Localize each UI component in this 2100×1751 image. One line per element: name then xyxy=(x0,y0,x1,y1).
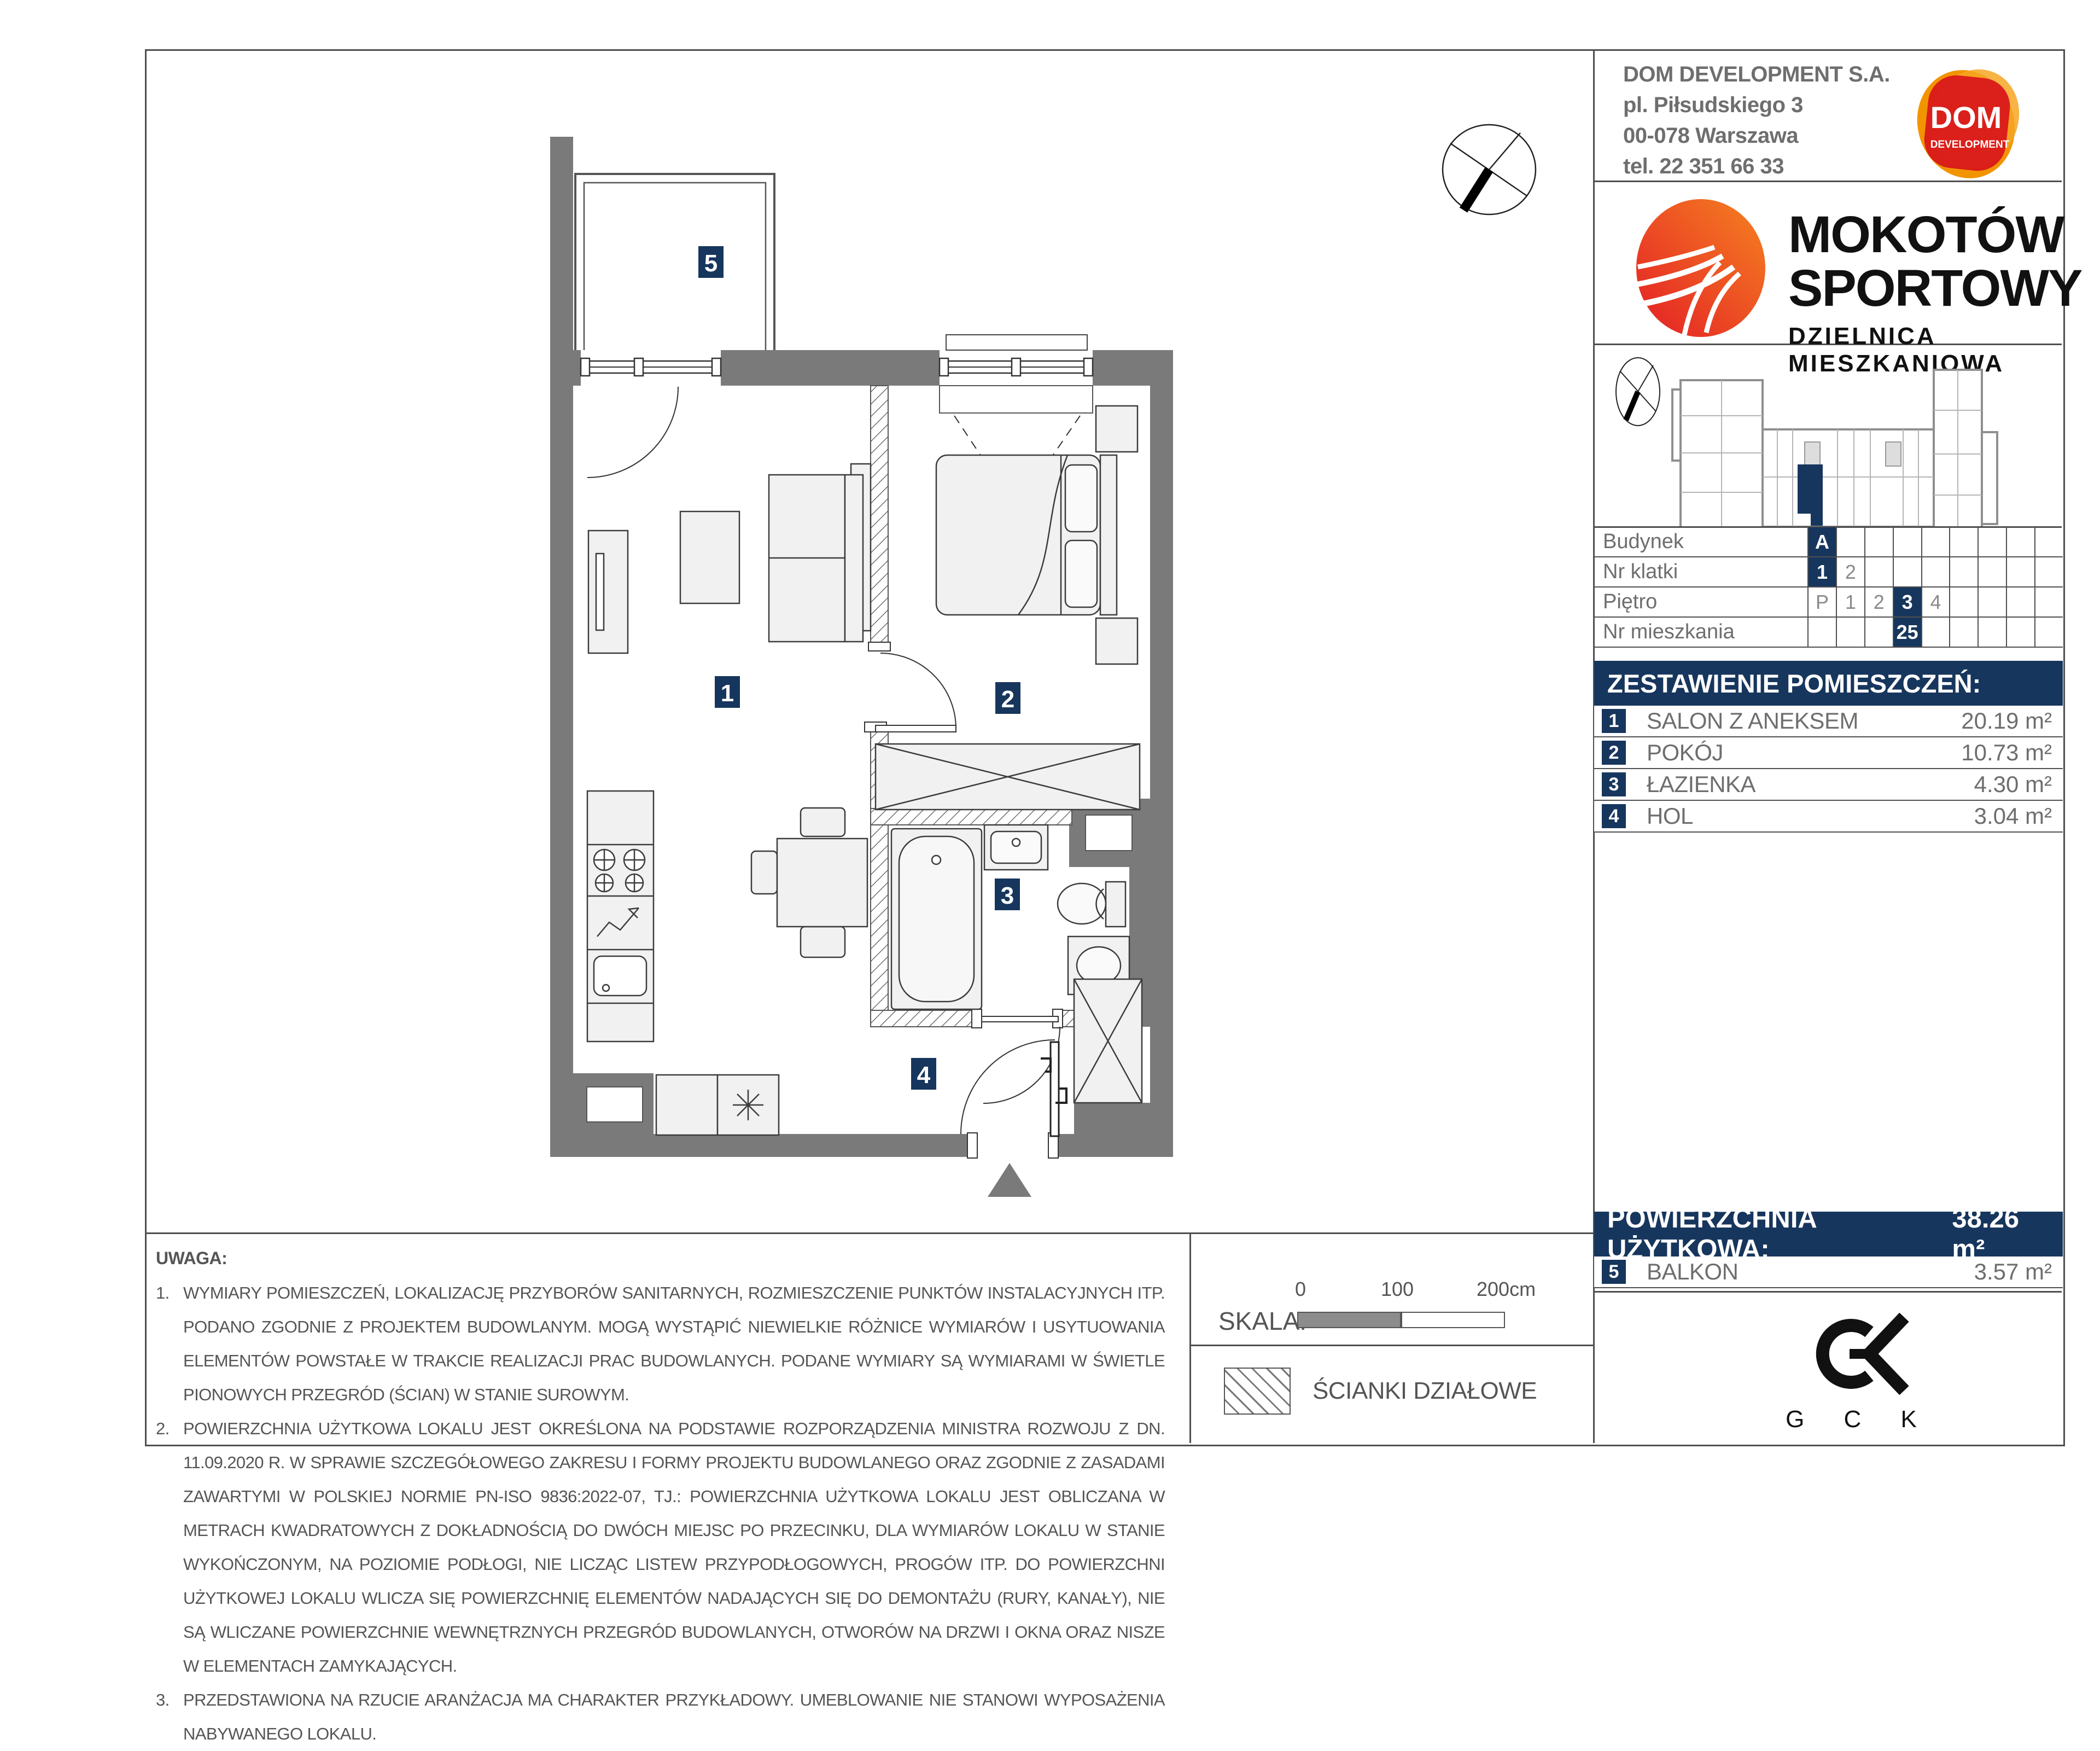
divider-gck xyxy=(1595,1291,2062,1293)
chair xyxy=(801,927,845,957)
room-number-badge: 3 xyxy=(1602,772,1626,796)
divider-scale xyxy=(1189,1234,1191,1443)
cell-building: A xyxy=(1809,527,1837,556)
bed xyxy=(936,455,1117,615)
room-row-salon: 1 SALON Z ANEKSEM 20.19 m² xyxy=(1594,706,2063,737)
hall-cabinet xyxy=(656,1075,717,1135)
stairs-symbol xyxy=(1805,442,1820,466)
wardrobe-hall xyxy=(1074,979,1142,1103)
badge-hall: 4 xyxy=(911,1058,936,1090)
usable-area-value: 38.26 m² xyxy=(1952,1203,2050,1265)
partition-legend-label: ŚCIANKI DZIAŁOWE xyxy=(1312,1377,1537,1405)
rooms-header: ZESTAWIENIE POMIESZCZEŃ: xyxy=(1594,661,2063,706)
entrance-arrow xyxy=(988,1163,1031,1197)
room-number-badge: 5 xyxy=(1602,1260,1626,1284)
badge-living-room: 1 xyxy=(715,676,740,708)
badge-balcony: 5 xyxy=(698,246,724,278)
svg-text:4: 4 xyxy=(917,1062,931,1089)
svg-text:DOM: DOM xyxy=(1930,100,2002,135)
scale-tick-100: 100 xyxy=(1381,1278,1414,1301)
badge-bedroom: 2 xyxy=(995,682,1020,714)
notes-section: UWAGA: 1. WYMIARY POMIESZCZEŃ, LOKALIZAC… xyxy=(156,1248,1165,1751)
kitchen-sink xyxy=(594,956,646,996)
washbasin xyxy=(984,825,1048,870)
chair xyxy=(751,851,777,894)
usable-area-label: POWIERZCHNIA UŻYTKOWA: xyxy=(1607,1203,1952,1265)
partition-hatch-swatch xyxy=(1224,1368,1291,1415)
badge-bathroom: 3 xyxy=(995,879,1020,910)
table-row-pietro: Piętro P 1 2 3 4 xyxy=(1594,587,2063,618)
balcony-outline xyxy=(575,174,774,351)
entrance-door xyxy=(961,1040,1066,1136)
note-item: 2. POWIERZCHNIA UŻYTKOWA LOKALU JEST OKR… xyxy=(156,1412,1165,1683)
gck-logo-letters: G C K xyxy=(1783,1406,1936,1433)
bedroom-door xyxy=(876,653,956,732)
living-room-window xyxy=(581,350,721,386)
table-row-mieszkanie: Nr mieszkania 25 xyxy=(1594,618,2063,648)
nightstand xyxy=(1096,618,1137,664)
note-item: 3. PRZEDSTAWIONA NA RZUCIE ARANŻACJA MA … xyxy=(156,1683,1165,1751)
nightstand xyxy=(1096,406,1137,452)
room-row-hol: 4 HOL 3.04 m² xyxy=(1594,801,2063,833)
tv-screen xyxy=(596,554,604,630)
site-compass-icon xyxy=(1616,358,1660,426)
developer-phone: tel. 22 351 66 33 xyxy=(1623,151,1907,182)
svg-text:1: 1 xyxy=(721,680,734,707)
sofa xyxy=(769,464,871,642)
svg-text:2: 2 xyxy=(1001,686,1014,713)
highlighted-unit-balcony xyxy=(1811,514,1823,526)
scale-tick-0: 0 xyxy=(1295,1278,1306,1301)
notes-title: UWAGA: xyxy=(156,1248,1165,1269)
north-compass-icon xyxy=(1430,112,1556,230)
bathroom-door xyxy=(982,1016,1060,1103)
toilet xyxy=(1058,882,1125,927)
floor-plan: 5 1 2 3 4 xyxy=(536,126,1203,1209)
divider-legend xyxy=(1191,1345,1593,1346)
table-row-budynek: Budynek A xyxy=(1594,527,2063,557)
room-row-lazienka: 3 ŁAZIENKA 4.30 m² xyxy=(1594,769,2063,801)
svg-text:DEVELOPMENT: DEVELOPMENT xyxy=(1930,139,2010,150)
room-number-badge: 4 xyxy=(1602,804,1626,828)
project-title-line1: MOKOTÓW xyxy=(1788,208,2062,261)
kitchen-counter xyxy=(587,791,654,1042)
dom-development-logo: DOM DEVELOPMENT xyxy=(1909,61,2023,187)
coffee-table xyxy=(680,511,739,603)
cell-floor: 3 xyxy=(1894,587,1922,616)
scale-tick-200: 200cm xyxy=(1477,1278,1536,1301)
gck-logo-icon xyxy=(1799,1313,1920,1400)
room-number-badge: 2 xyxy=(1602,741,1626,765)
rooms-table: 1 SALON Z ANEKSEM 20.19 m² 2 POKÓJ 10.73… xyxy=(1594,706,2063,833)
svg-text:3: 3 xyxy=(1001,882,1014,909)
project-title-line2: SPORTOWY xyxy=(1788,261,2062,315)
svg-text:5: 5 xyxy=(704,250,717,277)
developer-address1: pl. Piłsudskiego 3 xyxy=(1623,90,1907,120)
dining-table xyxy=(777,839,867,927)
cell-staircase: 1 xyxy=(1809,557,1837,586)
developer-address2: 00-078 Warszawa xyxy=(1623,120,1907,151)
note-item: 1. WYMIARY POMIESZCZEŃ, LOKALIZACJĘ PRZY… xyxy=(156,1276,1165,1412)
scale-bar-empty xyxy=(1401,1312,1505,1328)
developer-info: DOM DEVELOPMENT S.A. pl. Piłsudskiego 3 … xyxy=(1623,59,1907,182)
table-row-klatka: Nr klatki 1 2 xyxy=(1594,557,2063,587)
scale-bar-filled xyxy=(1297,1312,1401,1328)
tv-cabinet xyxy=(588,531,628,653)
room-number-badge: 1 xyxy=(1602,709,1626,733)
location-table: Budynek A Nr klatki 1 2 Piętro xyxy=(1594,527,2063,648)
stairs-symbol xyxy=(1886,442,1901,466)
highlighted-unit xyxy=(1798,464,1823,514)
wardrobe-bedroom xyxy=(876,744,1140,810)
wall-niche xyxy=(587,1087,643,1122)
chair xyxy=(801,808,845,836)
scale-label: SKALA: xyxy=(1218,1306,1306,1336)
bathtub xyxy=(891,829,982,1009)
divider-notes xyxy=(147,1232,1593,1234)
shaft-niche xyxy=(1086,815,1132,851)
cell-apartment-number: 25 xyxy=(1894,618,1922,647)
developer-name: DOM DEVELOPMENT S.A. xyxy=(1623,59,1907,90)
building-site-plan xyxy=(1595,346,2062,526)
room-row-pokoj: 2 POKÓJ 10.73 m² xyxy=(1594,737,2063,769)
balcony-door-swing xyxy=(587,387,678,478)
star-symbol xyxy=(733,1090,763,1120)
balcony-row-wrap: 5 BALKON 3.57 m² xyxy=(1594,1256,2063,1288)
mokotow-sportowy-logo-icon xyxy=(1632,197,1769,339)
room-row-balkon: 5 BALKON 3.57 m² xyxy=(1594,1256,2063,1288)
usable-area-bar: POWIERZCHNIA UŻYTKOWA: 38.26 m² xyxy=(1594,1212,2063,1256)
